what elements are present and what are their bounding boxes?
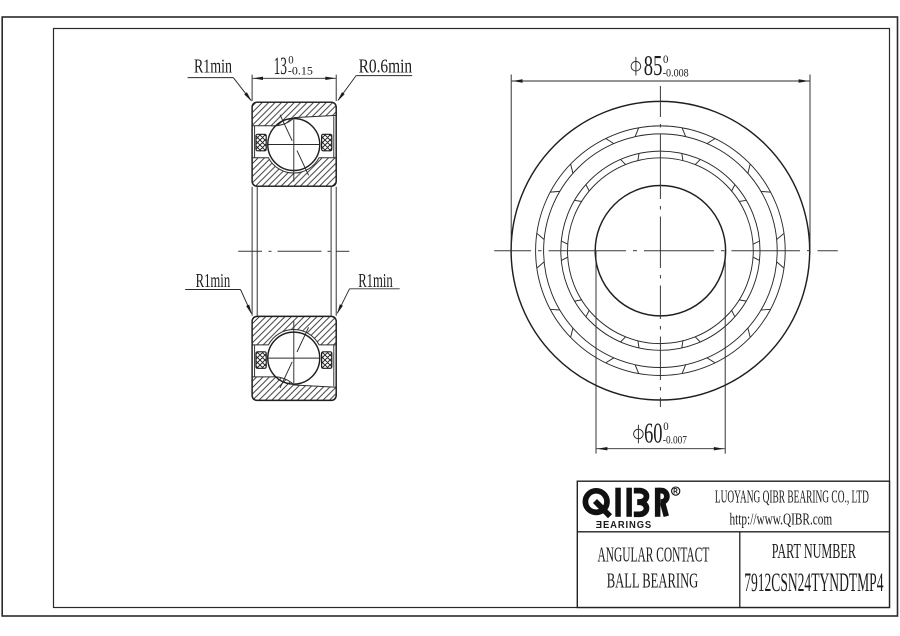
svg-text:-0.15: -0.15 <box>288 64 313 78</box>
svg-text:BALL BEARING: BALL BEARING <box>607 568 699 592</box>
svg-text:R1min: R1min <box>194 56 232 77</box>
svg-text:60: 60 <box>644 419 662 450</box>
svg-text:http://www.QIBR.com: http://www.QIBR.com <box>730 509 833 528</box>
svg-text:R1min: R1min <box>196 271 231 292</box>
svg-text:R0.6min: R0.6min <box>359 56 413 77</box>
svg-text:ƎEARINGS: ƎEARINGS <box>596 519 652 531</box>
svg-text:0: 0 <box>663 52 668 66</box>
svg-text:-0.008: -0.008 <box>663 65 689 79</box>
svg-text:13: 13 <box>274 51 287 80</box>
svg-text:ANGULAR CONTACT: ANGULAR CONTACT <box>598 543 710 567</box>
svg-text:-0.007: -0.007 <box>663 433 687 447</box>
svg-text:LUOYANG QIBR BEARING CO., LTD: LUOYANG QIBR BEARING CO., LTD <box>715 487 869 507</box>
svg-text:0: 0 <box>663 419 668 433</box>
svg-text:PART NUMBER: PART NUMBER <box>772 539 856 563</box>
svg-text:85: 85 <box>644 51 663 82</box>
svg-text:7912CSN24TYNDTMP4: 7912CSN24TYNDTMP4 <box>744 568 883 597</box>
